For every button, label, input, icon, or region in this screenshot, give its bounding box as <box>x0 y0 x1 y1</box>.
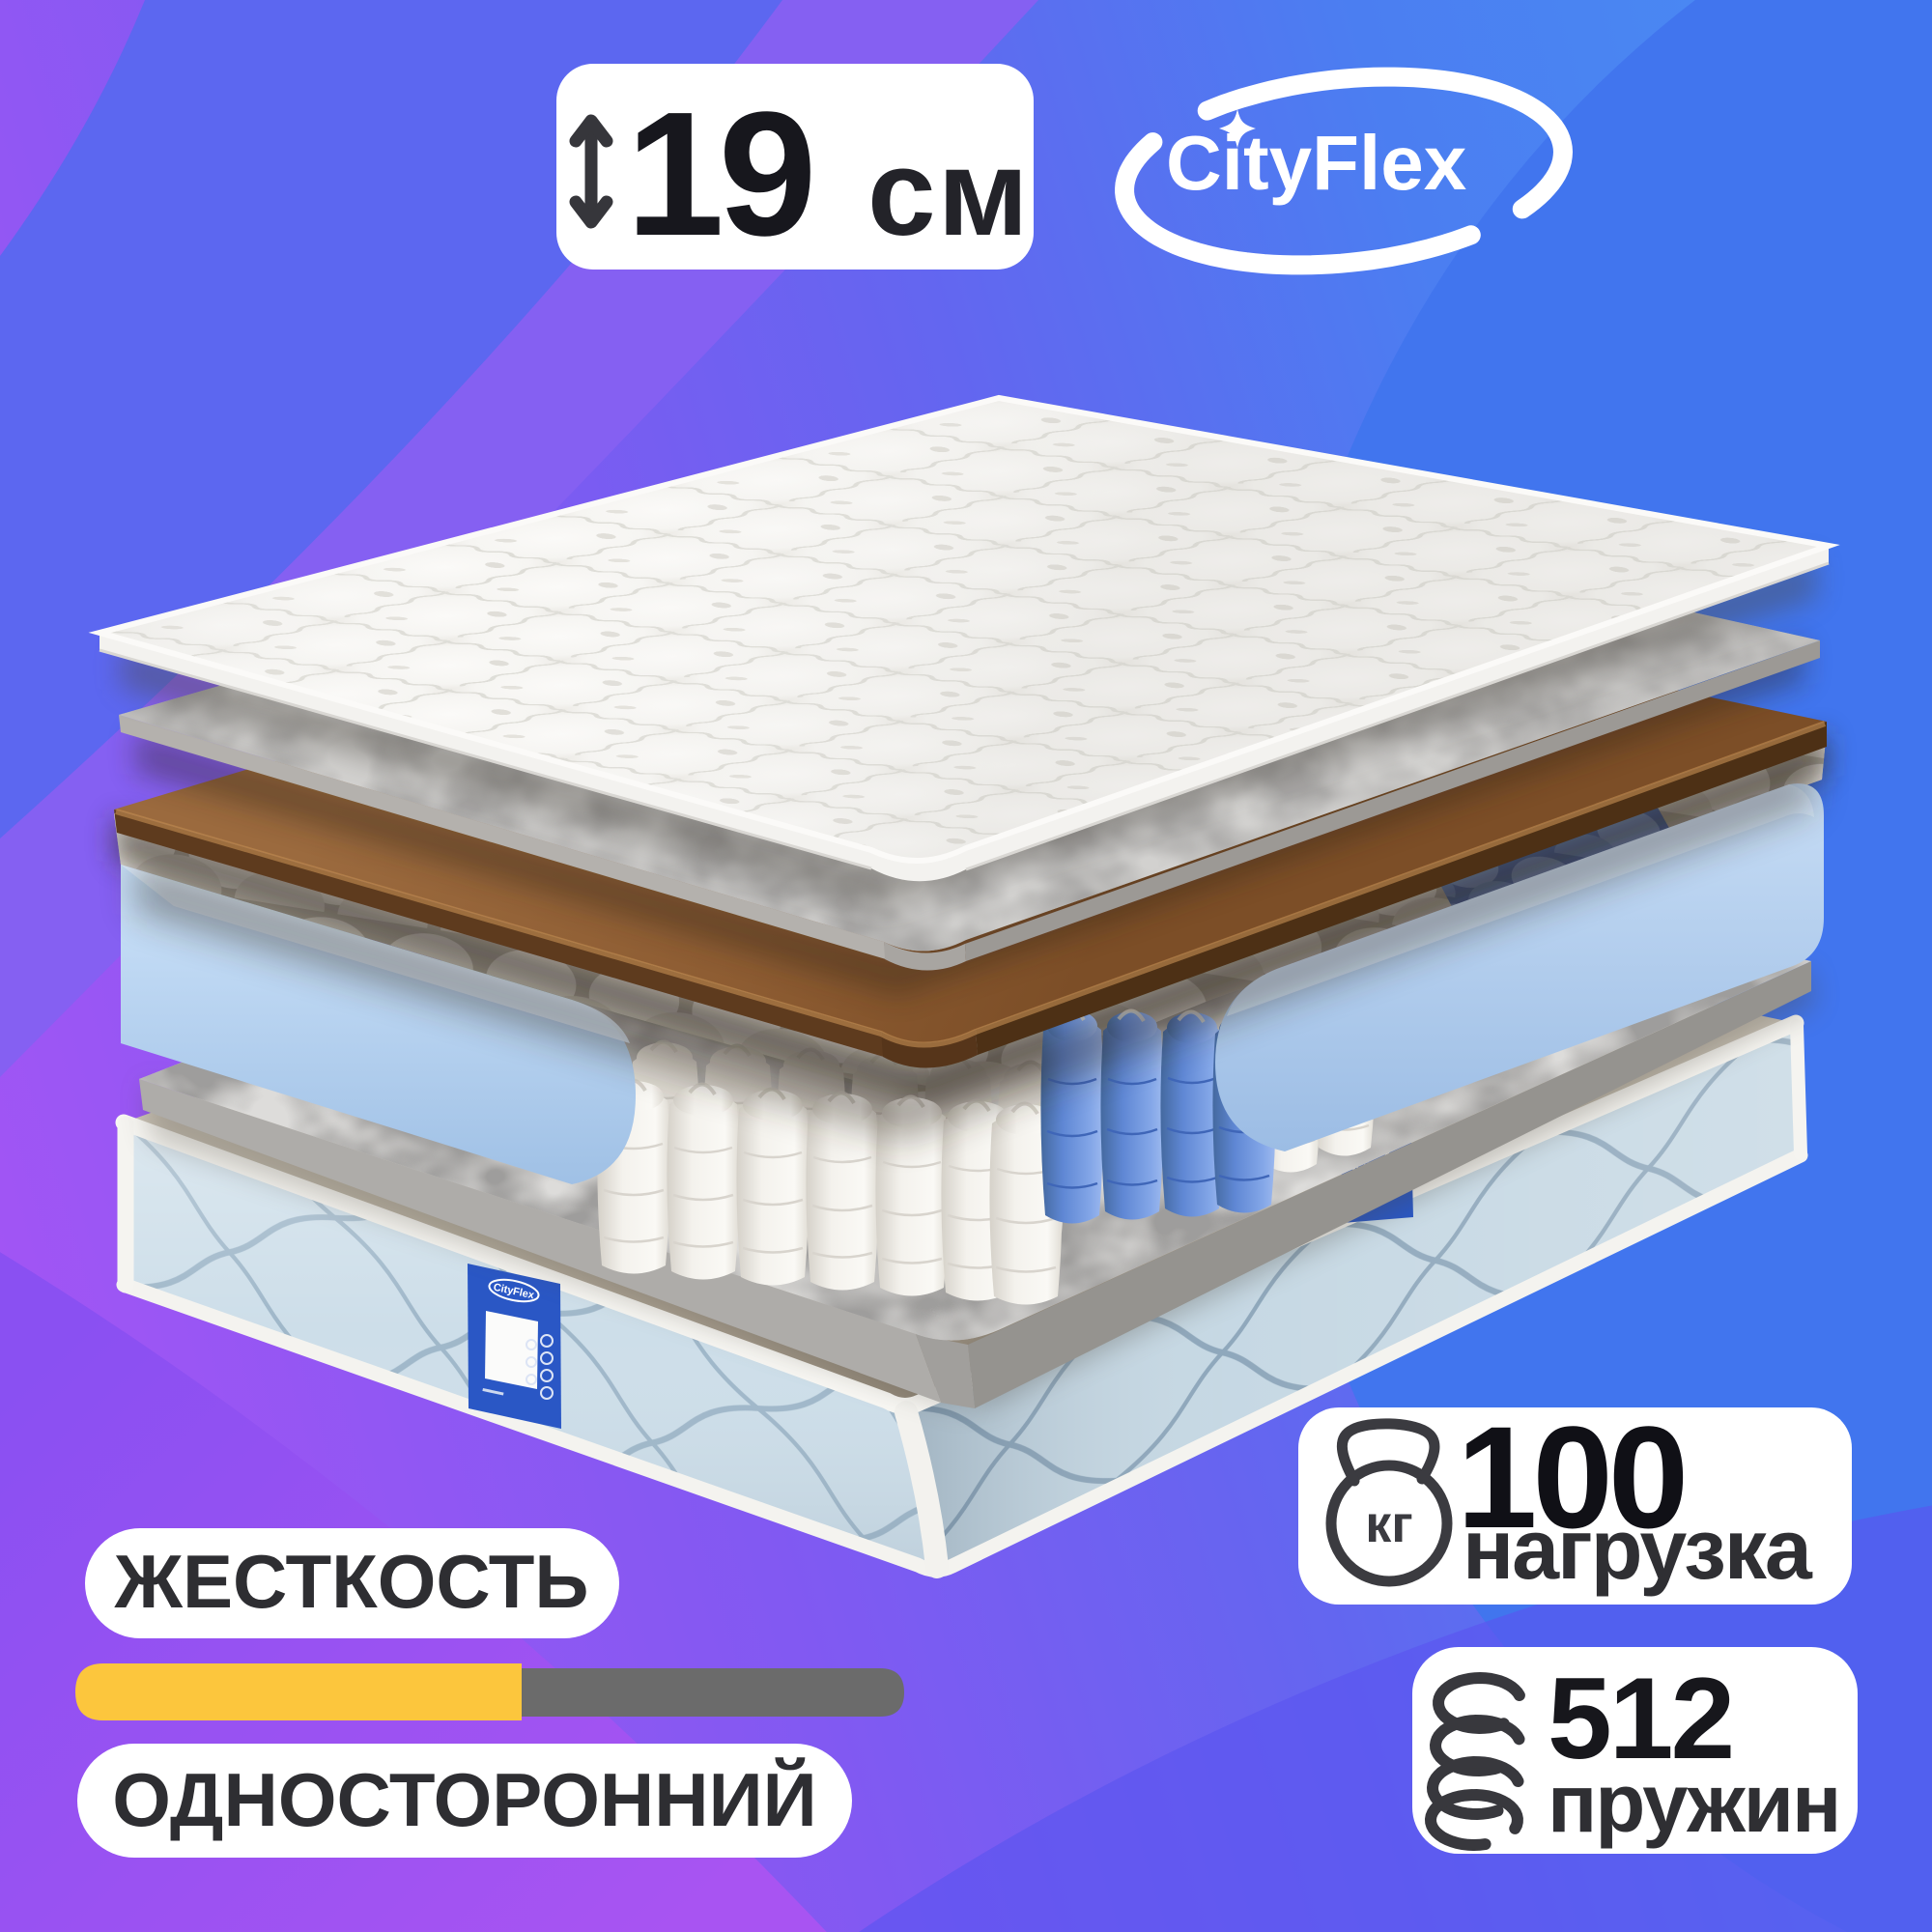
svg-text:ЖЕСТКОСТЬ: ЖЕСТКОСТЬ <box>114 1539 589 1624</box>
svg-text:19: 19 <box>626 74 811 272</box>
svg-text:кг: кг <box>1365 1495 1413 1553</box>
svg-text:нагрузка: нагрузка <box>1463 1501 1813 1597</box>
svg-text:CityFlex: CityFlex <box>1166 120 1466 206</box>
svg-text:см: см <box>867 124 1031 261</box>
svg-text:ОДНОСТОРОННИЙ: ОДНОСТОРОННИЙ <box>112 1757 816 1842</box>
svg-text:пружин: пружин <box>1548 1758 1839 1850</box>
